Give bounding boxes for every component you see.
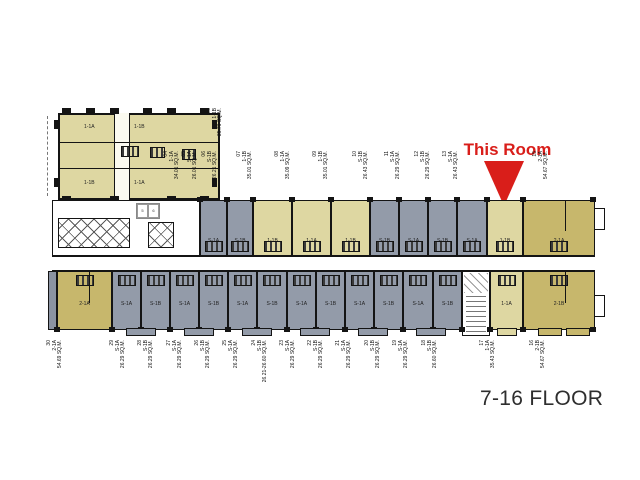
plumbing-core [264,241,282,252]
plumbing-core [409,275,427,286]
plumbing-core [376,241,394,252]
window-mark [110,196,119,201]
plumbing-core [205,275,223,286]
dim-area: 26.29 SQ.M. [291,340,297,395]
plumbing-core [322,275,340,286]
column-mark [400,327,406,332]
stair-steps [466,296,486,332]
dim-area: 26.29 SQ.M. [347,340,353,395]
unit-s-1b: S-1B [316,271,345,330]
dim-area: 26.29 SQ.M. [149,340,155,395]
unit-s-1a: S-1A [403,271,433,330]
unit-dim-label: 19S-1A26.29 SQ.M. [393,340,410,395]
lift-indicator: 5 6 [136,203,160,219]
unit-s-1b: S-1B [257,271,287,330]
lift-indicator-cell: 6 [148,204,159,218]
window-mark [54,178,59,187]
unit-s-1b: S-1B [141,271,170,330]
plumbing-core [498,275,516,286]
column-mark [454,197,460,202]
column-mark [520,197,526,202]
plumbing-core [439,275,457,286]
unit-type-label: 2-1A [58,302,111,307]
plumbing-core [118,275,136,286]
dim-area: 34.01 SQ.M. [175,151,181,206]
unit-s-1b: S-1B [227,200,253,256]
column-mark [425,197,431,202]
dim-area: 26.21-26.60 SQ.M. [263,340,269,395]
stairwell [462,271,490,336]
dim-area: 26.29 SQ.M. [234,340,240,395]
unit-type-label: S-1A [229,302,256,307]
dim-area: 54.69 SQ.M. [58,340,64,395]
unit-dim-label: 22S-1B26.29 SQ.M. [308,340,325,395]
column-mark [520,327,526,332]
plumbing-core [231,241,249,252]
unit-1-1a: 1-1A [490,271,523,330]
window-mark [54,120,59,129]
unit-s-1a: S-1A [345,271,374,330]
balcony [242,328,272,336]
dimension-line [47,116,48,196]
balcony [358,328,388,336]
dim-area: 54.67 SQ.M. [544,151,550,206]
unit-dim-label: 152-1A54.67 SQ.M. [533,151,550,206]
dim-area: 35.76 SQ.M. [218,108,224,163]
lift-indicator-cell: 5 [137,204,148,218]
unit-type-label: S-1B [258,302,286,307]
unit-type-label: S-1A [404,302,432,307]
floor-plan: 1-1A 1-1B 1-1B 1-1A 5 6 This Room 7-16 F… [0,0,640,480]
dim-area: 54.67 SQ.M. [541,340,547,395]
unit-s-1a: S-1A [112,271,141,330]
window-mark [200,108,209,114]
unit-type-label: S-1B [375,302,402,307]
unit-s-1a: S-1A [457,200,487,256]
column-mark [250,197,256,202]
unit-dim-label: 302-1A54.69 SQ.M. [47,340,64,395]
unit-s-1b: S-1B [428,200,457,256]
column-mark [289,197,295,202]
interior-wall [565,201,566,231]
left-balcony-edge [48,271,57,330]
interior-wall [89,272,90,303]
balcony [538,328,562,336]
unit-type-label: S-1B [317,302,344,307]
unit-type-label: S-1B [142,302,169,307]
dim-area: 26.29 SQ.M. [178,340,184,395]
dim-area: 26.29 SQ.M. [404,340,410,395]
unit-type-label: 1-1B [134,125,145,130]
unit-dim-label: 26S-1B26.29 SQ.M. [195,340,212,395]
plumbing-core [76,275,94,286]
unit-1-1b: 1-1B [331,200,370,256]
balcony [300,328,330,336]
unit-dim-label: 20S-1B26.29 SQ.M. [365,340,382,395]
plumbing-core [293,275,311,286]
column-mark [396,197,402,202]
unit-s-1a: S-1A [170,271,199,330]
unit-type-label: 1-1A [491,302,522,307]
unit-dim-label: 24S-1B26.21-26.60 SQ.M. [252,340,269,395]
unit-s-1b: S-1B [370,200,399,256]
unit-1-1b: 1-1B [253,200,292,256]
unit-s-1b: S-1B [433,271,462,330]
unit-s-1a: S-1A [228,271,257,330]
plumbing-core [405,241,423,252]
dim-area: 26.29 SQ.M. [319,340,325,395]
column-mark [167,327,173,332]
column-mark [590,327,596,332]
unit-dim-label: 28S-1B26.29 SQ.M. [138,340,155,395]
interior-wall [565,272,566,303]
unit-s-1b: S-1B [199,271,228,330]
unit-dim-label: 23S-1A26.29 SQ.M. [280,340,297,395]
unit-dim-label: 25S-1A26.29 SQ.M. [223,340,240,395]
unit-dim-label: 171-1A35.43 SQ.M. [480,340,497,395]
plumbing-core [303,241,321,252]
unit-2-1b: 2-1B [523,271,595,330]
unit-dim-label: 18S-1B26.60 SQ.M. [422,340,439,395]
unit-type-label: S-1A [346,302,373,307]
unit-1-1a: 1-1A [292,200,331,256]
dim-area: 35.43 SQ.M. [491,340,497,395]
unit-2-1a: 2-1A [57,271,112,330]
window-mark [143,108,152,114]
stair-hatch [464,273,488,293]
unit-s-1a: S-1A [200,200,227,256]
column-mark [590,197,596,202]
column-mark [328,197,334,202]
plumbing-core [263,275,281,286]
plumbing-core [463,241,481,252]
window-mark [167,108,176,114]
plumbing-core [496,241,514,252]
unit-s-1b: S-1B [374,271,403,330]
unit-type-label: S-1B [200,302,227,307]
block-a-wall [58,142,220,143]
plumbing-core [550,241,568,252]
plumbing-core [380,275,398,286]
unit-s-1a: S-1A [287,271,316,330]
column-mark [225,327,231,332]
unit-type-label: 1-1A [134,181,145,186]
plumbing-core [434,241,452,252]
plumbing-core [176,275,194,286]
corridor [52,256,595,271]
unit-type-label: 2-1B [524,302,594,307]
unit-dim-label: 162-1B54.67 SQ.M. [530,340,547,395]
window-mark [167,196,176,201]
balcony [126,328,156,336]
plumbing-core [147,275,165,286]
column-mark [342,327,348,332]
dim-area: 26.29 SQ.M. [376,340,382,395]
column-mark [284,327,290,332]
unit-type-label: S-1A [288,302,315,307]
plumbing-core [351,275,369,286]
unit-dim-label: 27S-1A26.29 SQ.M. [167,340,184,395]
column-mark [484,197,490,202]
unit-type-label: 1-1A [84,125,95,130]
unit-type-label: S-1A [113,302,140,307]
unit-dim-label: 21S-1A26.29 SQ.M. [336,340,353,395]
window-mark [110,108,119,114]
window-mark [62,108,71,114]
column-mark [367,197,373,202]
column-mark [487,327,493,332]
unit-type-label: S-1B [434,302,461,307]
block-a-fixture [121,146,139,157]
column-mark [459,327,465,332]
plumbing-core [205,241,223,252]
elevator-shaft [58,218,130,248]
column-mark [224,197,230,202]
window-mark [200,196,209,201]
balcony [184,328,214,336]
dim-area: 26.29 SQ.M. [206,340,212,395]
window-mark [62,196,71,201]
unit-type-label: 1-1B [84,181,95,186]
balcony [416,328,446,336]
plumbing-core [342,241,360,252]
unit-2-1a: 2-1A [523,200,595,256]
window-mark [86,108,95,114]
dim-area: 26.29 SQ.M. [121,340,127,395]
unit-type-label: S-1A [171,302,198,307]
plumbing-core [234,275,252,286]
window-mark [212,178,217,187]
column-mark [109,327,115,332]
unit-1-1b-this-room: 1-1B [487,200,523,256]
dim-area: 26.60 SQ.M. [433,340,439,395]
window-mark [212,120,217,129]
unit-dim-label: 29S-1A26.29 SQ.M. [110,340,127,395]
unit-s-1a: S-1A [399,200,428,256]
column-mark [54,327,60,332]
balcony [566,328,590,336]
elevator-shaft [148,222,174,248]
balcony [497,328,517,336]
